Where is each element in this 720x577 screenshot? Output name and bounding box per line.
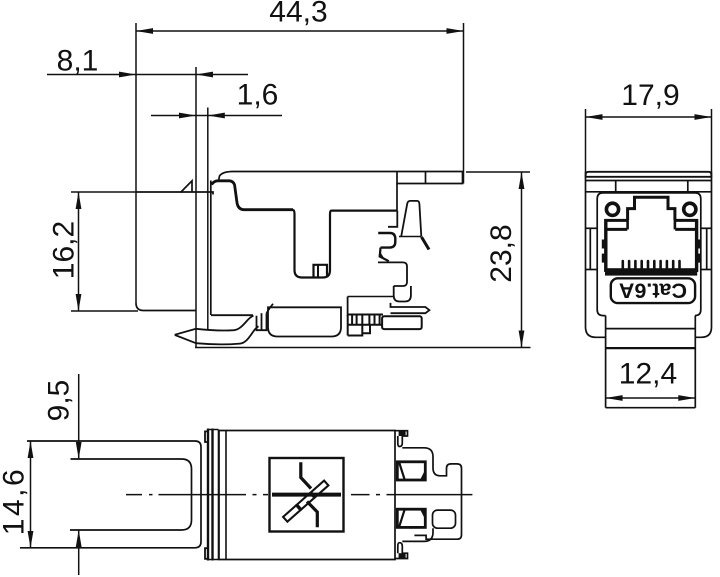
- svg-text:8,1: 8,1: [57, 45, 99, 78]
- svg-text:1,6: 1,6: [237, 79, 279, 112]
- svg-text:12,4: 12,4: [619, 358, 677, 391]
- svg-text:16,2: 16,2: [48, 221, 81, 279]
- svg-text:9,5: 9,5: [43, 380, 76, 422]
- svg-text:23,8: 23,8: [485, 224, 518, 282]
- svg-text:Cat.6A: Cat.6A: [619, 279, 687, 303]
- svg-text:14,6: 14,6: [0, 467, 31, 535]
- svg-text:44,3: 44,3: [269, 0, 327, 29]
- svg-text:17,9: 17,9: [621, 79, 679, 112]
